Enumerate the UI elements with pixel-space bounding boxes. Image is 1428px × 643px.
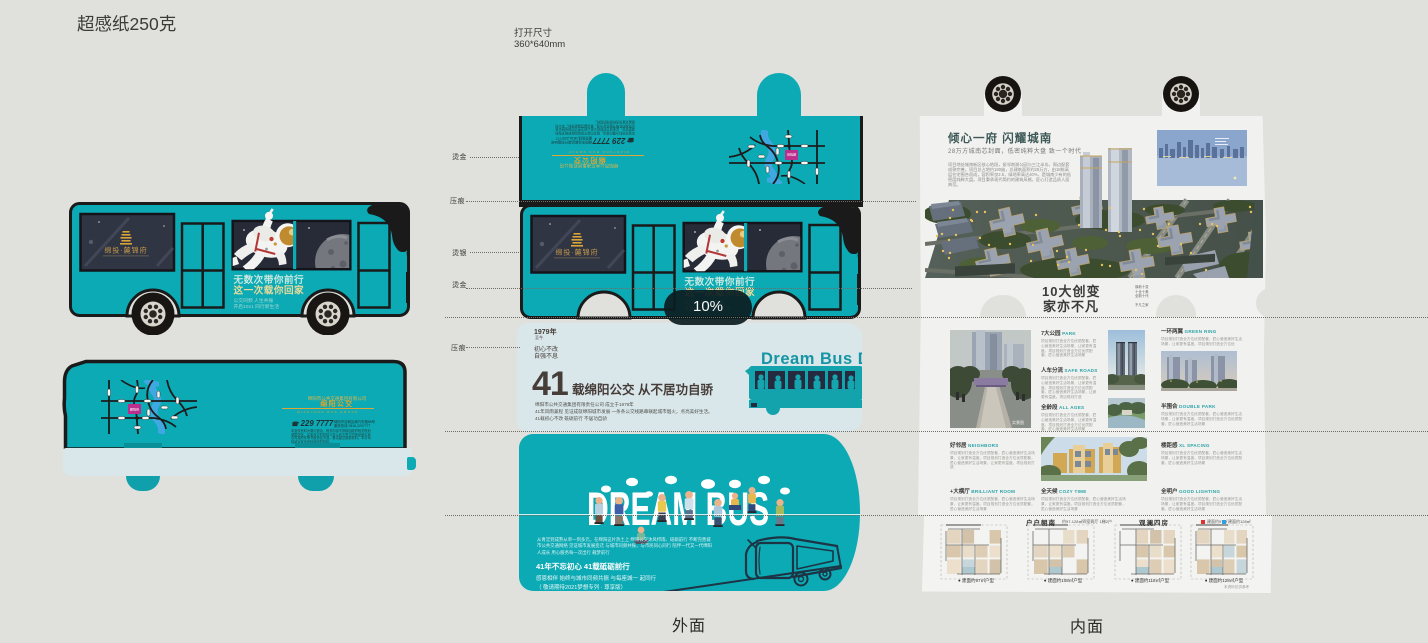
svg-text:这一次载你回家: 这一次载你回家 bbox=[234, 285, 305, 297]
svg-text:无数次带你前行: 无数次带你前行 bbox=[233, 274, 305, 286]
svg-text:开启1021 同行新生活: 开启1021 同行新生活 bbox=[234, 303, 280, 310]
svg-text:绵投·麓锦府: 绵投·麓锦府 bbox=[104, 246, 147, 255]
svg-text:绵投·麓锦府: 绵投·麓锦府 bbox=[555, 248, 598, 257]
svg-text:实景图: 实景图 bbox=[1012, 419, 1024, 425]
svg-text:无数次带你前行: 无数次带你前行 bbox=[684, 276, 756, 288]
svg-text:公交同频 人生共振: 公交同频 人生共振 bbox=[234, 297, 274, 304]
svg-text:麓锦府: 麓锦府 bbox=[130, 407, 139, 412]
